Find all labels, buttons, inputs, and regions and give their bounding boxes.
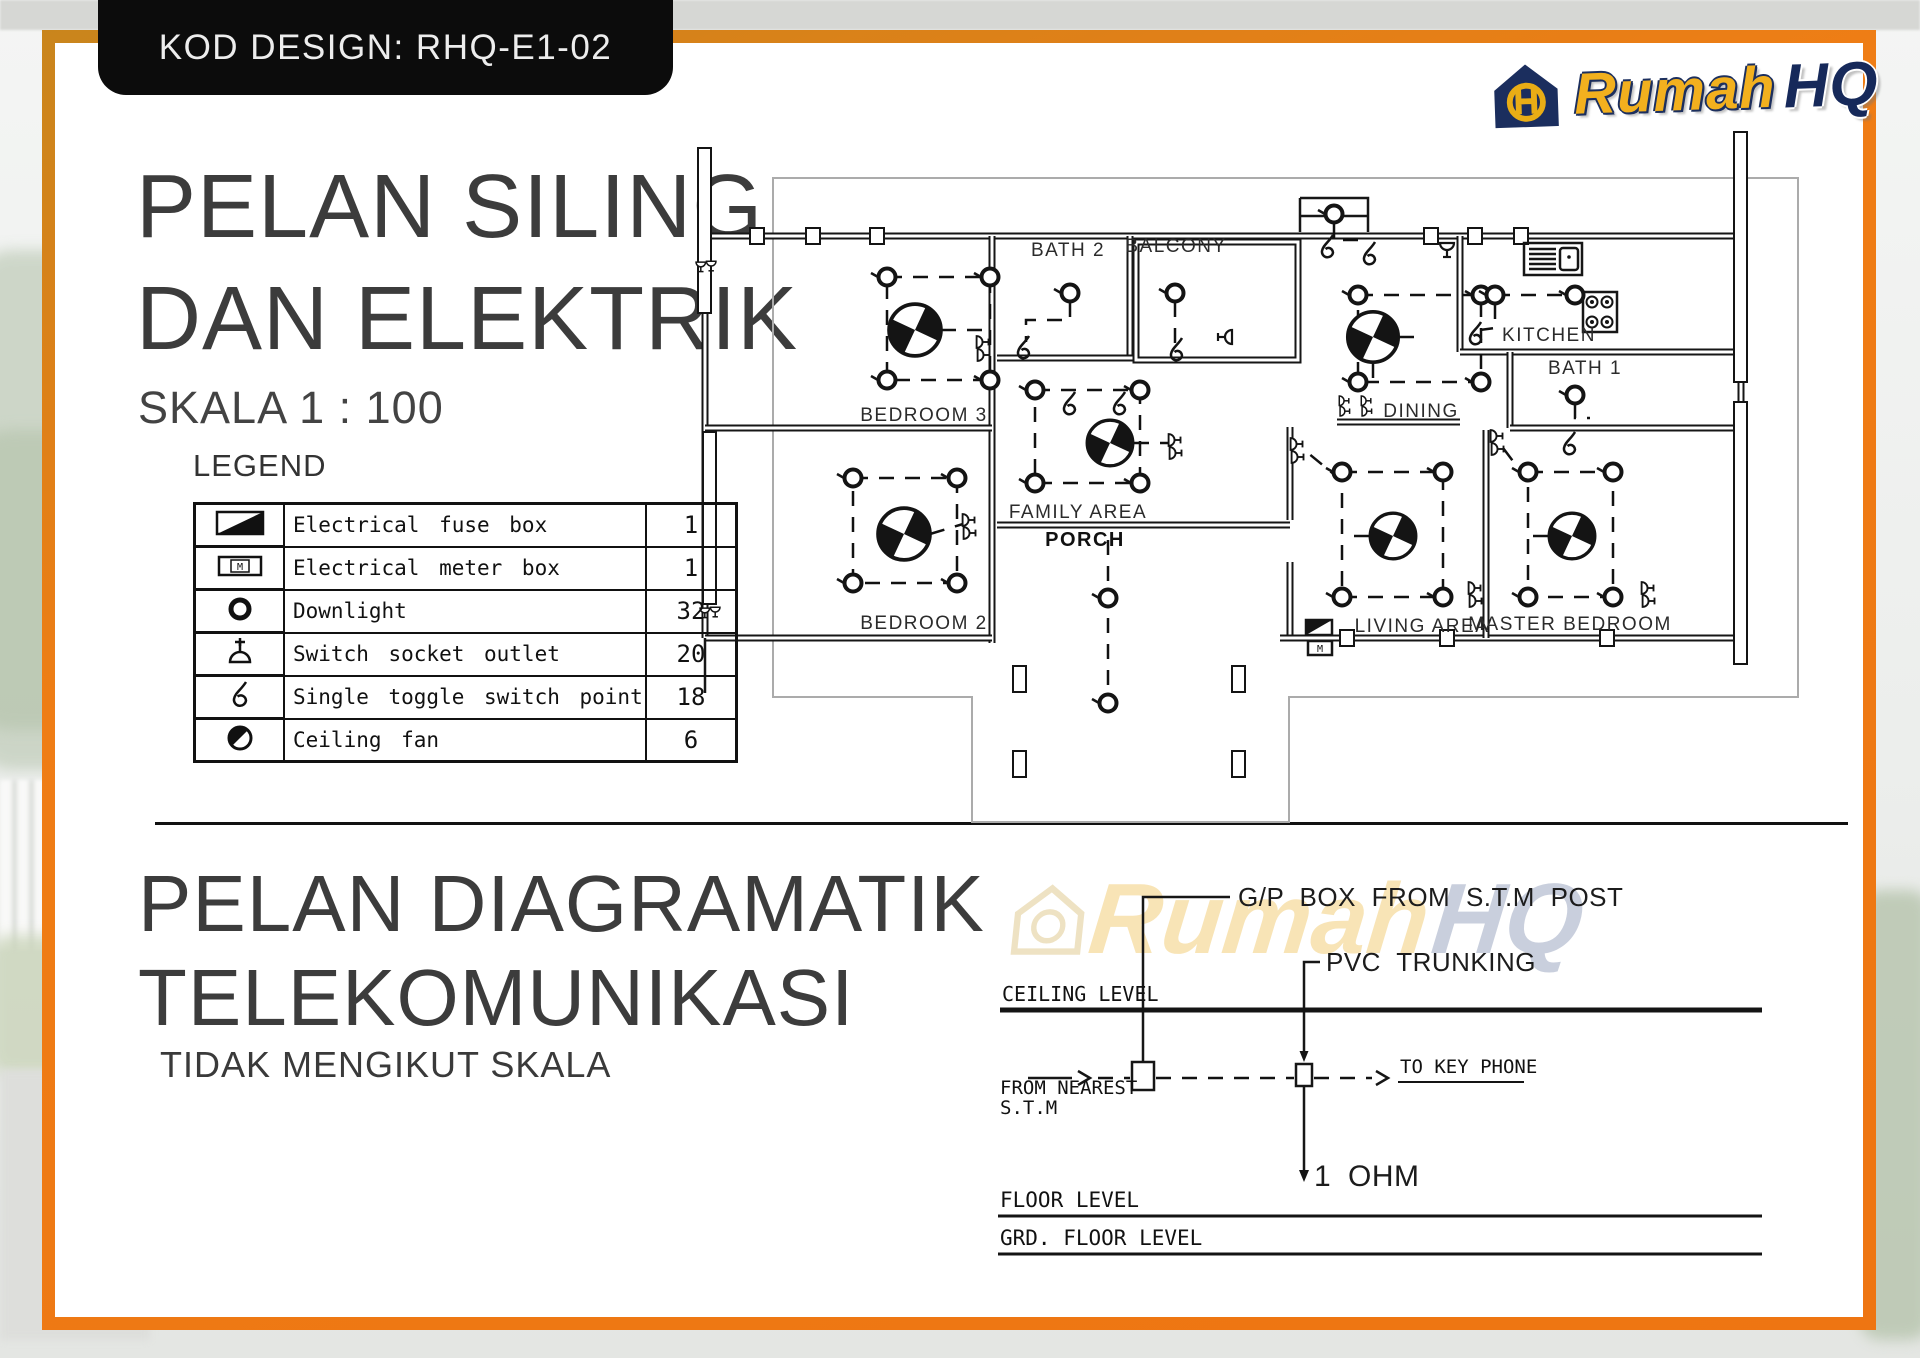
legend-count: 32	[646, 590, 737, 633]
room-label-balcony: BALCONY	[1125, 236, 1226, 257]
logo-word-rumah: Rumah	[1573, 53, 1777, 127]
legend-label: Electrical fuse box	[284, 504, 646, 547]
fuse-box-symbol	[210, 506, 270, 540]
ceiling-electrical-floor-plan: M	[650, 130, 1810, 860]
legend-count: 1	[646, 504, 737, 547]
ceiling-fan-symbol	[210, 721, 270, 755]
legend-label: Single toggle switch point	[284, 676, 646, 719]
ohm-label: 1 OHM	[1314, 1160, 1420, 1193]
room-label-porch: PORCH	[1045, 529, 1125, 551]
socket-outlet-symbol	[210, 635, 270, 669]
room-label-bedroom2: BEDROOM 2	[860, 613, 988, 634]
scale-label: SKALA 1 : 100	[138, 382, 444, 434]
room-label-bath1: BATH 1	[1548, 358, 1622, 379]
legend-label: Downlight	[284, 590, 646, 633]
electrical-fuse-box	[1306, 620, 1332, 635]
stm-label: S.T.M	[1000, 1097, 1057, 1119]
legend-count: 6	[646, 719, 737, 762]
pvc-box	[1296, 1064, 1312, 1086]
legend-table: Electrical fuse box 1 M Electrical meter…	[193, 502, 738, 763]
meter-box-symbol: M	[210, 549, 270, 583]
downlight-symbol	[210, 592, 270, 626]
grd-floor-level-label: GRD. FLOOR LEVEL	[1000, 1226, 1202, 1250]
floor-level-label: FLOOR LEVEL	[1000, 1188, 1139, 1212]
legend-row-downlight: Downlight 32	[195, 590, 737, 633]
legend-heading: LEGEND	[193, 448, 326, 484]
bottom-title-line1: PELAN DIAGRAMATIK	[138, 858, 985, 950]
structural-columns	[698, 132, 1747, 777]
legend-label: Switch socket outlet	[284, 633, 646, 676]
ohm-arrowhead	[1299, 1170, 1309, 1182]
legend-label: Electrical meter box	[284, 547, 646, 590]
pvc-callout-line	[1304, 962, 1320, 1052]
legend-row-fuse-box: Electrical fuse box 1	[195, 504, 737, 547]
pvc-arrowhead	[1300, 1051, 1309, 1062]
toggle-switch-symbol	[210, 678, 270, 712]
legend-label: Ceiling fan	[284, 719, 646, 762]
gp-box-label: G/P BOX FROM S.T.M POST	[1238, 882, 1623, 912]
room-label-family-area: FAMILY AREA	[1009, 502, 1147, 523]
telecom-diagram: G/P BOX FROM S.T.M POST PVC TRUNKING CEI…	[980, 850, 1780, 1280]
legend-row-meter-box: M Electrical meter box 1	[195, 547, 737, 590]
legend-count: 18	[646, 676, 737, 719]
room-label-bedroom3: BEDROOM 3	[860, 405, 988, 426]
room-label-bath2: BATH 2	[1031, 240, 1105, 261]
brand-logo: Rumah HQ	[1485, 45, 1880, 135]
room-label-kitchen: KITCHEN	[1502, 325, 1596, 346]
design-code-badge: KOD DESIGN: RHQ-E1-02	[98, 0, 673, 95]
bottom-title-line2: TELEKOMUNIKASI	[138, 952, 854, 1044]
room-label-master-bedroom: MASTER BEDROOM	[1468, 614, 1672, 635]
design-code-label: KOD DESIGN: RHQ-E1-02	[159, 28, 613, 68]
from-nearest-label: FROM NEAREST	[1000, 1077, 1137, 1099]
legend-row-toggle-switch: Single toggle switch point 18	[195, 676, 737, 719]
legend-count: 1	[646, 547, 737, 590]
legend-row-ceiling-fan: Ceiling fan 6	[195, 719, 737, 762]
to-key-phone-label: TO KEY PHONE	[1400, 1056, 1537, 1078]
ceiling-level-label: CEILING LEVEL	[1002, 982, 1159, 1006]
room-label-dining: DINING	[1383, 401, 1459, 422]
kitchen-sink	[1524, 243, 1582, 275]
gp-callout-line	[1143, 897, 1230, 1062]
house-monogram-icon	[1485, 56, 1568, 135]
meter-letter: M	[236, 562, 242, 573]
run-arrow-right	[1376, 1071, 1388, 1085]
pvc-label: PVC TRUNKING	[1326, 947, 1536, 977]
logo-word-hq: HQ	[1782, 48, 1879, 122]
legend-row-socket-outlet: Switch socket outlet 20	[195, 633, 737, 676]
meter-letter: M	[1317, 644, 1323, 655]
site-boundary	[773, 178, 1798, 822]
legend-count: 20	[646, 633, 737, 676]
electrical-meter-box: M	[1308, 641, 1332, 655]
bottom-subtitle: TIDAK MENGIKUT SKALA	[160, 1044, 611, 1086]
